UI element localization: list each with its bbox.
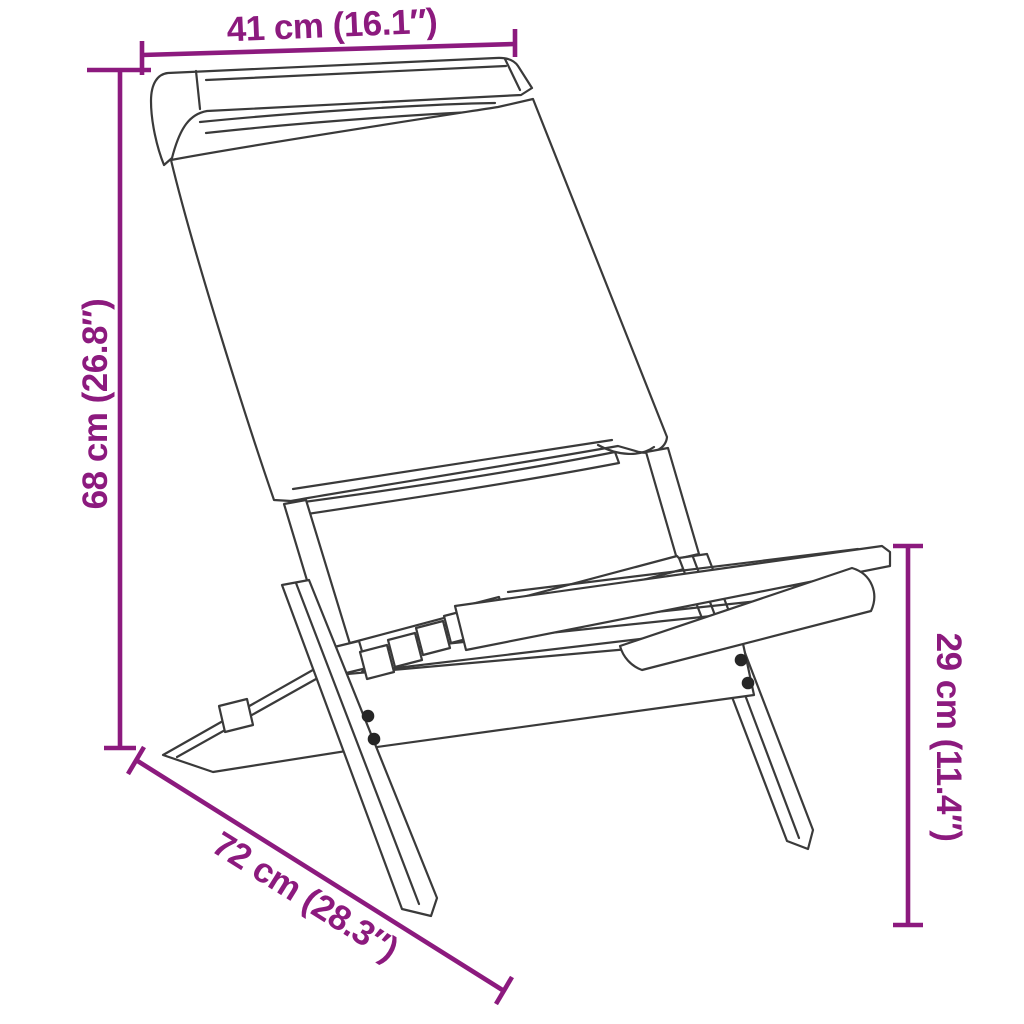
dimension-label-left-height: 68 cm (26.8″) [76,299,116,510]
dim-line-bottom-depth [128,747,512,1004]
dimension-label-right-seat-height: 29 cm (11.4″) [928,633,968,842]
dim-line-right-seat-height [893,546,923,925]
dim-tick [496,977,512,1004]
fabric-back-panel [171,99,667,501]
chair-line-drawing [0,0,1024,1024]
dim-tick [128,747,144,774]
chair [151,58,890,916]
dimension-diagram: 41 cm (16.1″) 68 cm (26.8″) 29 cm (11.4″… [0,0,1024,1024]
back-stile-right [646,448,699,559]
